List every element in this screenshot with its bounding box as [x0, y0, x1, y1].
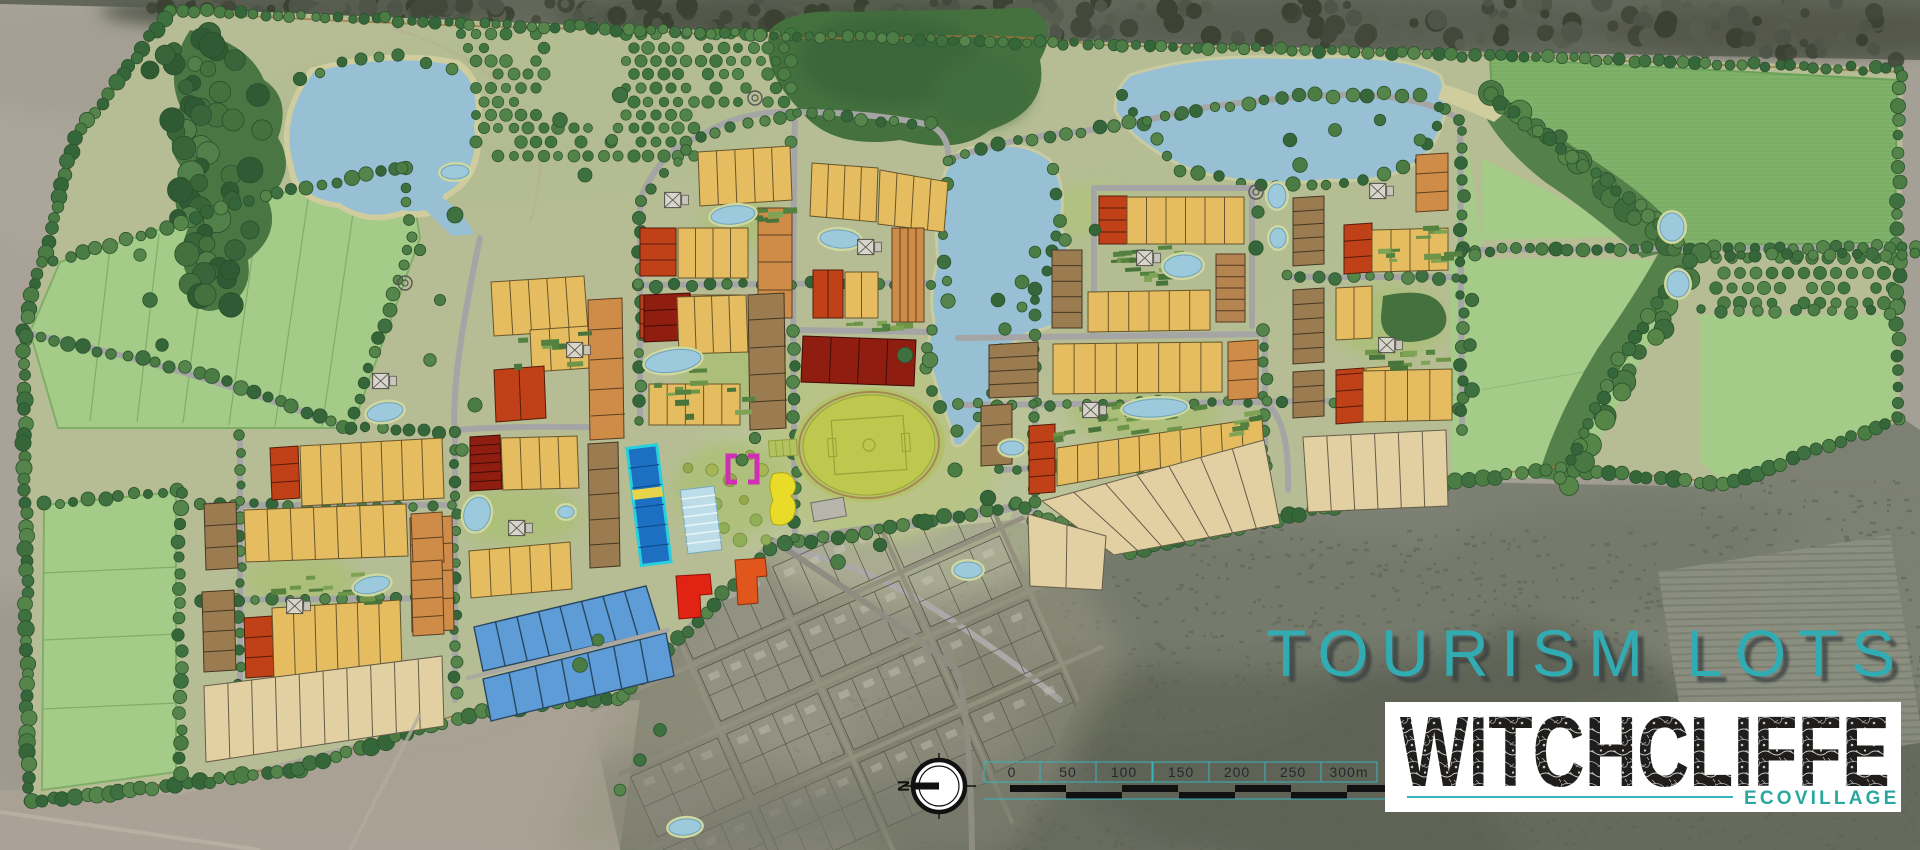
svg-text:50: 50 [1059, 764, 1077, 780]
svg-text:TOURISM LOTS: TOURISM LOTS [1266, 616, 1907, 690]
svg-text:100: 100 [1111, 764, 1137, 780]
svg-text:ECOVILLAGE: ECOVILLAGE [1744, 788, 1900, 809]
svg-text:200: 200 [1224, 764, 1250, 780]
svg-text:150: 150 [1168, 764, 1194, 780]
svg-text:0: 0 [1008, 764, 1017, 780]
svg-text:N: N [896, 780, 913, 792]
svg-text:300m: 300m [1329, 764, 1368, 780]
svg-text:250: 250 [1280, 764, 1306, 780]
